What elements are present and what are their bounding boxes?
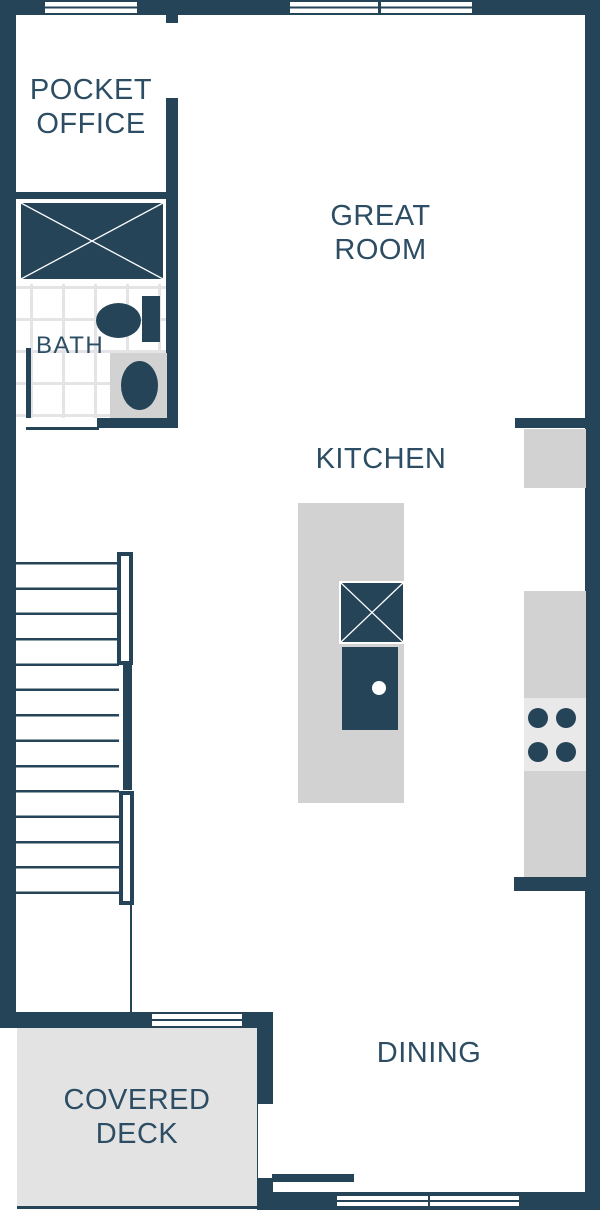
bath-sink-basin [121,361,158,410]
dishwasher-knob [372,681,386,695]
wall-pocket-office-bath-right [166,98,178,428]
deck-bottom-edge [17,1206,257,1209]
burner-icon [556,708,576,728]
bath-door-threshold [26,427,99,430]
stair-opening-line [130,905,132,1012]
wall-left [0,0,16,1028]
wall-bottom [257,1192,600,1210]
great-room-label: GREAT ROOM [296,199,465,267]
toilet-tank [142,296,160,342]
pocket-office-label-line2: OFFICE [16,107,166,141]
wall-deck-right-upper [257,1028,273,1104]
wall-kitchen-jut-bottom [514,877,600,891]
burner-icon [528,708,548,728]
counter-right-middle [524,591,586,698]
stair-rail-upper [117,552,133,665]
wall-pocket-office-door-stub [166,15,178,23]
stair-rail-lower [119,791,134,905]
counter-right-lower [524,771,586,877]
wall-kitchen-jut-top [515,418,600,428]
cooktop [524,698,586,771]
window-bottom-right-pane [430,1194,519,1208]
wall-right [585,0,600,1210]
shower-x-icon [21,203,163,279]
burner-icon [528,742,548,762]
wall-dining-stub [272,1174,354,1182]
great-room-label-line2: ROOM [296,233,465,267]
window-top-left [45,0,137,15]
window-top-middle [290,0,378,15]
stair-treads [16,562,119,894]
island-sink-fixture [341,583,403,642]
covered-deck-label: COVERED DECK [37,1083,237,1151]
window-deck-top [152,1012,242,1028]
bath-door-leaf [26,348,31,418]
covered-deck-label-line1: COVERED [37,1083,237,1117]
island-sink-x-icon [341,583,403,642]
floor-plan: POCKET OFFICE GREAT ROOM BATH KITCHEN DI… [0,0,600,1210]
dishwasher-fixture [342,647,398,730]
bath-label: BATH [36,334,104,358]
window-bottom-left-pane [337,1194,428,1208]
shower-fixture [21,203,163,279]
window-top-right [381,0,472,15]
covered-deck-label-line2: DECK [37,1117,237,1151]
pocket-office-label-line1: POCKET [16,73,166,107]
pocket-office-label: POCKET OFFICE [16,73,166,141]
great-room-label-line1: GREAT [296,199,465,233]
kitchen-label: KITCHEN [296,442,466,476]
burner-icon [556,742,576,762]
counter-right-upper [524,429,586,488]
dining-label: DINING [344,1036,514,1070]
stair-rail-middle [123,665,132,790]
